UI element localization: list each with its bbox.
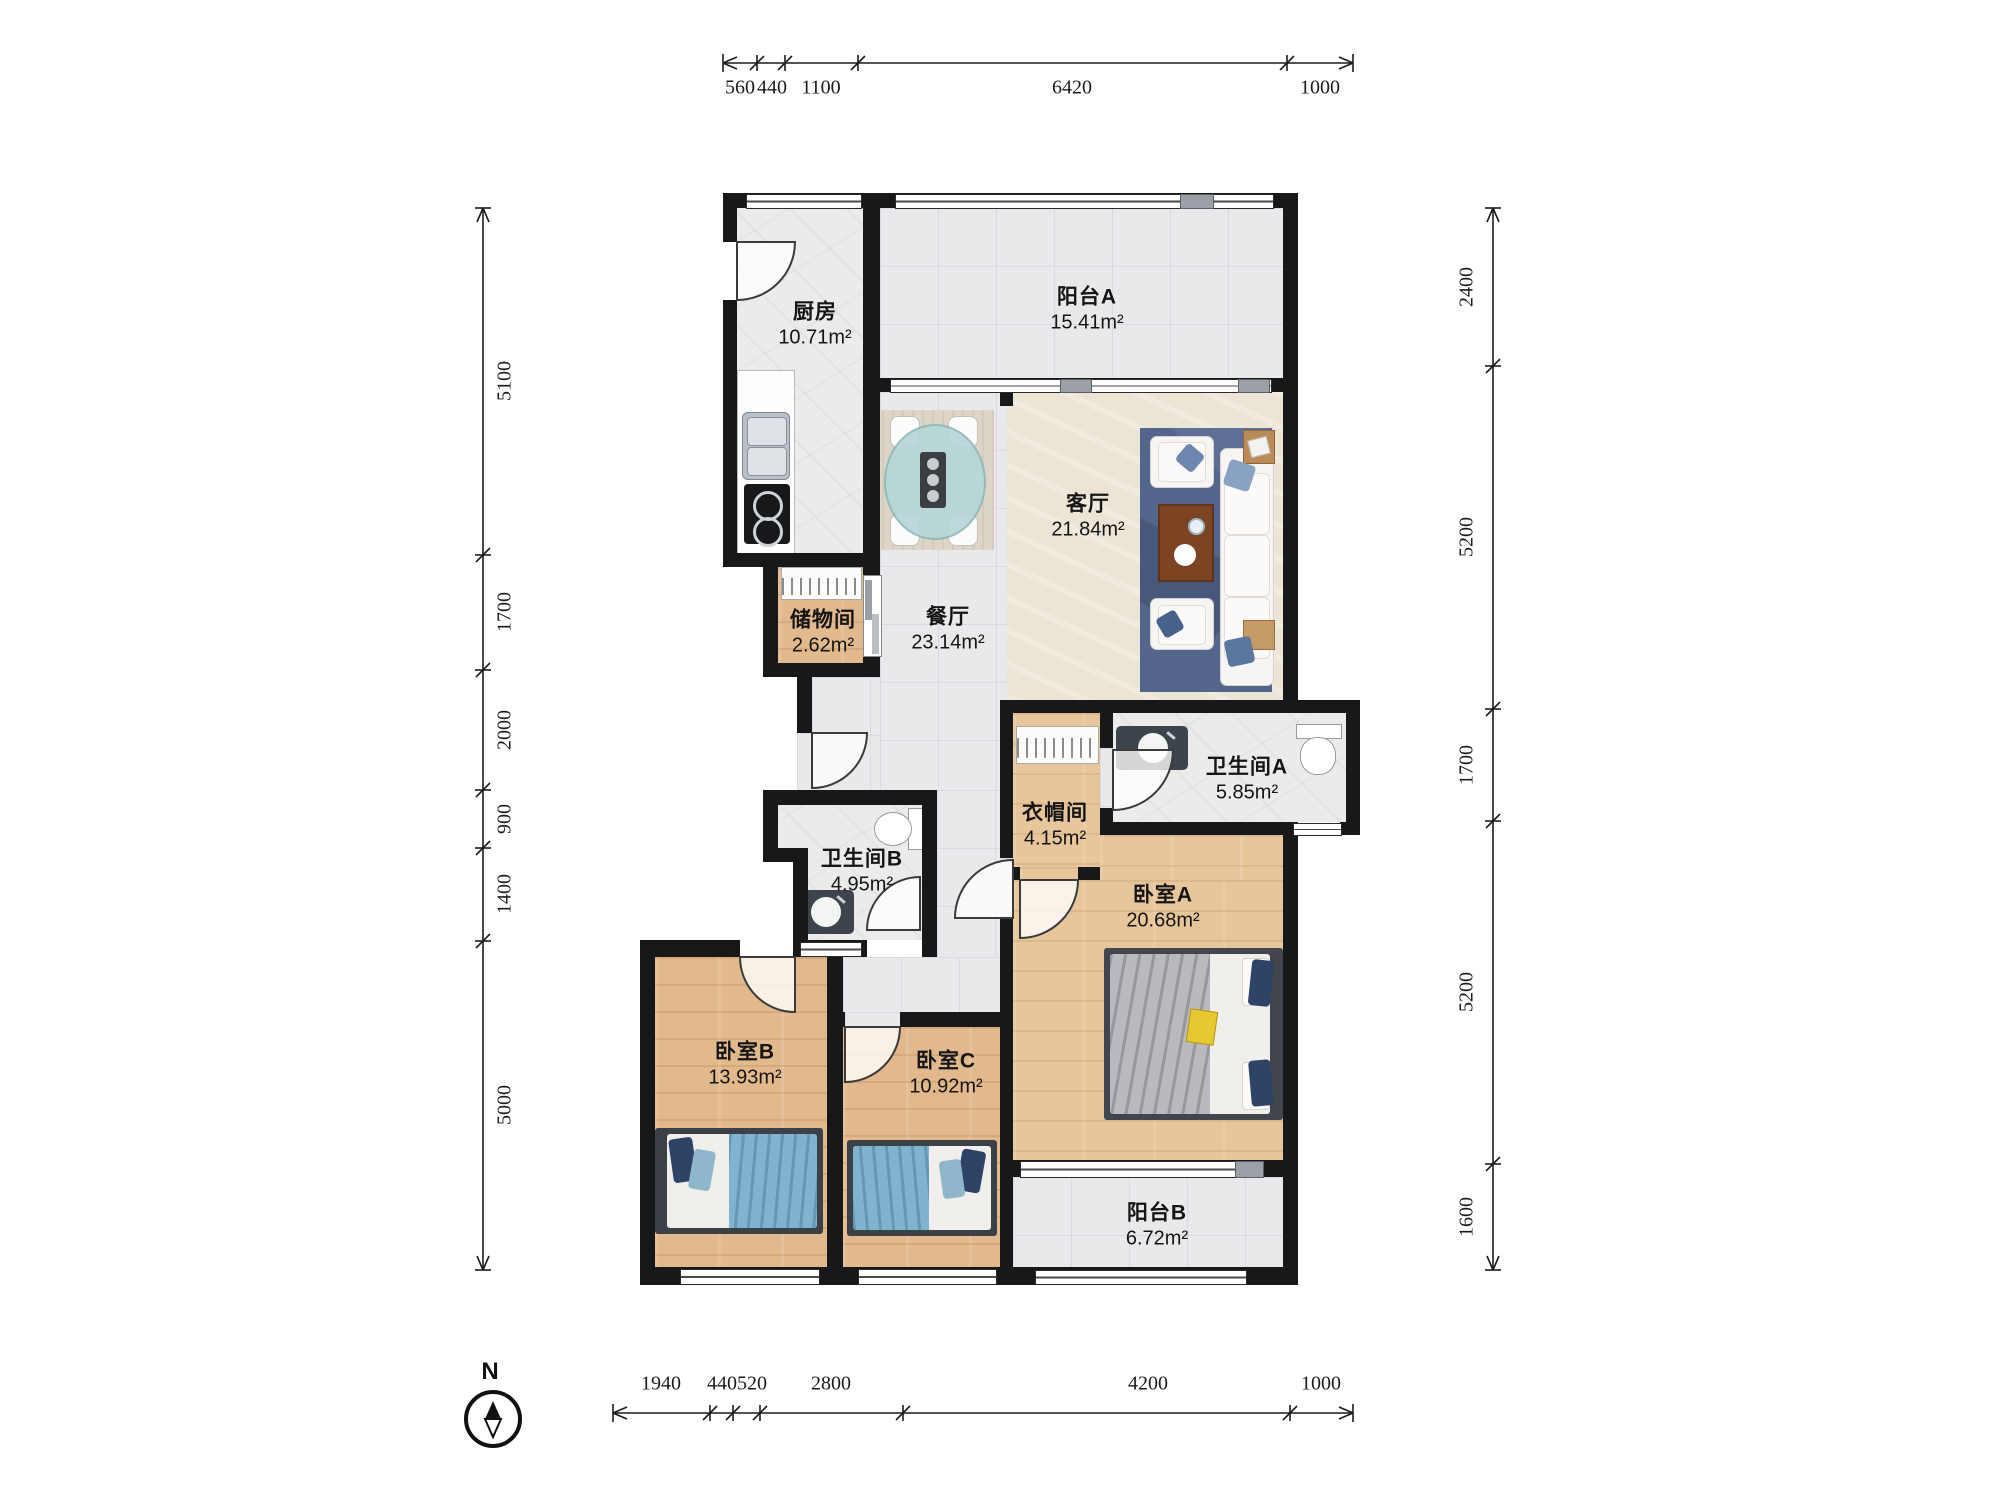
door-threshold [797,733,812,790]
room-name: 餐厅 [911,604,984,630]
room-name: 卧室A [1126,882,1199,908]
wall-closet-bath-a-divider-top [1100,713,1113,748]
window-bed-c [858,1269,997,1285]
room-area: 6.72m² [1126,1227,1188,1252]
slider-post [1060,379,1092,393]
stove-burner [753,517,783,547]
room-name: 厨房 [778,299,851,325]
wall-bath-a-bottom-b [1340,822,1360,835]
window-balcony-a-top-1 [895,194,1182,209]
armchair [1150,598,1214,650]
room-area: 10.92m² [909,1075,982,1100]
wall-bed-a-left-lower [1000,918,1013,1285]
room-label-dining: 餐厅 23.14m² [911,604,984,655]
compass-icon [464,1390,522,1448]
dim-label: 1940 [641,1373,681,1396]
room-area: 23.14m² [911,631,984,656]
window-pillar-top [1180,194,1214,209]
wall-right-upper [1283,193,1298,713]
room-name: 卧室C [909,1048,982,1074]
kitchen-stove [744,484,790,544]
dim-label: 440 [707,1373,737,1396]
bed-a-floor-ne [1100,835,1283,880]
room-name: 阳台B [1126,1200,1188,1226]
storage-sliding-door [863,575,882,657]
dish [927,490,939,502]
washbasin [811,897,841,927]
compass-north-label: N [481,1358,498,1386]
wall-kitchen-right [863,193,880,567]
dim-label: 520 [737,1373,767,1396]
toilet [1296,724,1340,776]
magazine [1247,436,1271,458]
slider-post [1235,1161,1264,1178]
window-bath-b [800,942,862,957]
room-area: 4.95m² [821,873,903,898]
dim-label: 1000 [1300,77,1340,100]
door-threshold [845,1012,900,1027]
room-label-kitchen: 厨房 10.71m² [778,299,851,350]
dim-label: 2800 [811,1373,851,1396]
dim-label: 2000 [494,710,517,750]
door-threshold [1100,748,1113,808]
wall-bed-b-left [640,940,655,1285]
book-yellow [1186,1008,1218,1046]
room-area: 20.68m² [1126,909,1199,934]
compass-needle-icon [468,1394,518,1444]
wall-dining-living-stub [1000,392,1013,406]
bathroom-vanity [1116,726,1188,770]
sliding-panel [865,580,872,620]
dimension-line-bottom [600,1396,1370,1430]
room-area: 5.85m² [1206,781,1288,806]
dimension-line-right [1476,192,1510,1286]
dish [927,458,939,470]
wall-bath-a-bottom-a [1100,822,1293,835]
wall-kitchen-bottom [723,553,880,567]
wall-bed-a-left-upper [1000,713,1013,858]
blanket-blue [853,1146,929,1230]
toilet-bowl [1300,737,1336,775]
window-bath-a [1293,823,1342,836]
dim-label: 5200 [1456,517,1479,557]
room-name: 衣帽间 [1022,800,1088,826]
dim-label: 5000 [494,1085,517,1125]
window-kitchen-top [746,194,862,209]
kitchen-sink [742,412,790,480]
corridor-floor [812,677,880,790]
room-label-storage: 储物间 2.62m² [790,607,856,658]
wall-bath-a-right [1346,700,1360,835]
hall-floor-east [937,790,1000,957]
room-label-bed-c: 卧室C 10.92m² [909,1048,982,1099]
room-area: 21.84m² [1051,518,1124,543]
room-label-bed-b: 卧室B 13.93m² [708,1039,781,1090]
wall-corridor-west [797,677,812,733]
dim-label: 560 [725,77,755,100]
pillow-navy [1248,1059,1274,1107]
wall-storage-right-top [863,567,880,575]
sink-basin [747,447,787,476]
dim-label: 1700 [494,592,517,632]
wall-bed-c-top-right [900,1012,1013,1027]
dim-label: 1600 [1456,1197,1479,1237]
washbasin [1138,733,1168,763]
wall-hall-south-a [640,940,740,957]
sliding-panel [872,614,879,654]
wall-bed-bc-divider [827,940,843,1285]
wall-storage-left [763,553,778,677]
room-area: 15.41m² [1050,311,1123,336]
room-name: 卫生间B [821,846,903,872]
dim-label: 440 [757,77,787,100]
armchair [1150,436,1214,488]
dim-label: 900 [494,804,517,834]
room-label-closet: 衣帽间 4.15m² [1022,800,1088,851]
wall-bath-b-right [922,790,937,957]
room-name: 卫生间A [1206,754,1288,780]
window-balcony-a-top-2 [1212,194,1274,209]
slider-post [1238,379,1270,393]
room-name: 卧室B [708,1039,781,1065]
sofa-cushion [1224,535,1270,597]
dimension-line-top [690,46,1380,80]
dim-label: 6420 [1052,77,1092,100]
blanket-blue [729,1134,817,1228]
bed-a [1104,948,1283,1120]
wall-closet-bottom-b [1078,867,1100,880]
room-area: 13.93m² [708,1066,781,1091]
room-label-bath-a: 卫生间A 5.85m² [1206,754,1288,805]
wall-mid-horizontal [1000,700,1360,713]
window-bed-a-slider [1020,1161,1237,1178]
dim-label: 4200 [1128,1373,1168,1396]
dim-label: 1400 [494,874,517,914]
door-threshold [1020,867,1078,880]
hall-floor-south [843,957,1000,1012]
dim-label: 1700 [1456,745,1479,785]
dim-label: 1000 [1301,1373,1341,1396]
dish [927,474,939,486]
wall-left-kitchen-upper [723,193,737,242]
cup [1188,518,1205,535]
room-area: 2.62m² [790,634,856,659]
room-label-living: 客厅 21.84m² [1051,491,1124,542]
bed-b [655,1128,823,1234]
side-table [1243,430,1275,464]
sofa-pillow [1223,635,1255,667]
room-label-bath-b: 卫生间B 4.95m² [821,846,903,897]
pillow-navy [1248,959,1275,1007]
floor-plan: 厨房 10.71m² 阳台A 15.41m² 客厅 21.84m² 餐厅 23.… [0,0,2000,1500]
bowl [1174,544,1196,566]
dining-table-runner [920,452,946,508]
faucet [1166,731,1176,740]
room-name: 储物间 [790,607,856,633]
dim-label: 2400 [1456,267,1479,307]
door-threshold [1000,858,1013,918]
dim-label: 5200 [1456,972,1479,1012]
wall-bath-b-top [763,790,937,805]
room-area: 4.15m² [1022,827,1088,852]
room-area: 10.71m² [778,326,851,351]
toilet [874,808,924,848]
wall-bed-c-top-left [827,1012,845,1027]
storage-rack [781,567,862,600]
dim-label: 5100 [494,361,517,401]
window-balcony-b [1035,1270,1247,1285]
closet-rack [1016,726,1099,764]
wall-bath-b-left-lower [793,848,808,940]
sink-basin [747,417,787,446]
room-name: 阳台A [1050,284,1123,310]
room-label-balcony-a: 阳台A 15.41m² [1050,284,1123,335]
toilet-bowl [874,812,912,846]
bed-c [847,1140,997,1236]
dim-label: 1100 [801,77,840,100]
room-label-bed-a: 卧室A 20.68m² [1126,882,1199,933]
room-label-balcony-b: 阳台B 6.72m² [1126,1200,1188,1251]
wall-right-lower [1283,822,1298,1285]
wall-left-kitchen-lower [723,300,737,567]
wall-storage-bottom [763,663,880,677]
window-bed-b [680,1269,820,1285]
room-name: 客厅 [1051,491,1124,517]
coffee-table [1158,504,1214,582]
